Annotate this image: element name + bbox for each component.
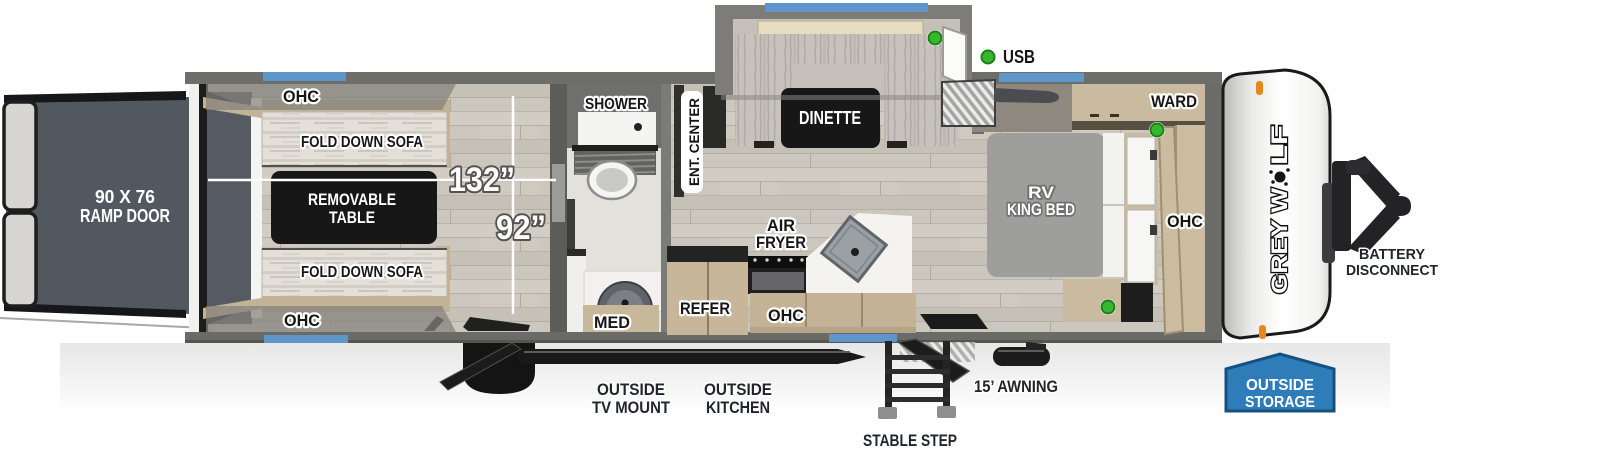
svg-text:OHC: OHC: [284, 311, 320, 330]
svg-text:KING BED: KING BED: [1007, 200, 1075, 219]
svg-text:STABLE STEP: STABLE STEP: [863, 431, 957, 450]
svg-text:90 X 76: 90 X 76: [95, 187, 155, 207]
svg-text:OHC: OHC: [283, 87, 319, 106]
svg-text:REMOVABLE: REMOVABLE: [308, 190, 396, 209]
svg-text:BATTERY: BATTERY: [1359, 246, 1425, 263]
svg-text:TABLE: TABLE: [329, 208, 375, 227]
svg-text:SHOWER: SHOWER: [585, 96, 647, 113]
svg-text:GREY W: GREY W: [1267, 188, 1292, 294]
svg-text:KITCHEN: KITCHEN: [706, 398, 770, 417]
svg-text:FRYER: FRYER: [756, 233, 806, 252]
svg-text:DINETTE: DINETTE: [799, 108, 861, 128]
svg-text:LF: LF: [1267, 125, 1292, 165]
svg-text:TV MOUNT: TV MOUNT: [592, 398, 671, 417]
svg-text:OHC: OHC: [768, 306, 804, 325]
svg-text:DISCONNECT: DISCONNECT: [1346, 262, 1438, 279]
svg-text:OHC: OHC: [1167, 212, 1203, 231]
svg-text:STORAGE: STORAGE: [1245, 394, 1315, 411]
svg-text:FOLD DOWN SOFA: FOLD DOWN SOFA: [301, 264, 423, 281]
svg-text:USB: USB: [1003, 47, 1035, 67]
svg-text:REFER: REFER: [680, 299, 730, 318]
svg-text:OUTSIDE: OUTSIDE: [704, 380, 772, 399]
svg-text:RAMP DOOR: RAMP DOOR: [80, 206, 170, 226]
svg-text:MED: MED: [594, 313, 630, 332]
svg-text:FOLD DOWN SOFA: FOLD DOWN SOFA: [301, 134, 423, 151]
svg-text:15’ AWNING: 15’ AWNING: [974, 377, 1058, 396]
svg-text:OUTSIDE: OUTSIDE: [1246, 377, 1314, 394]
svg-text:OUTSIDE: OUTSIDE: [597, 380, 665, 399]
svg-text:WARD: WARD: [1151, 92, 1197, 111]
svg-text:132”: 132”: [449, 161, 515, 199]
svg-text:92”: 92”: [496, 209, 546, 247]
svg-text:ENT. CENTER: ENT. CENTER: [686, 98, 702, 186]
